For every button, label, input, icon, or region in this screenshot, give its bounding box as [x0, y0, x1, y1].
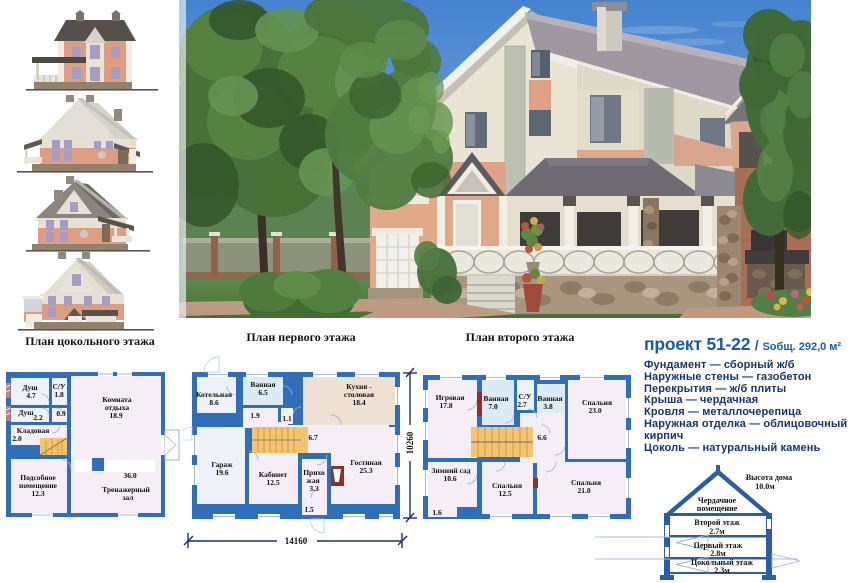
svg-text:1.9: 1.9 [250, 411, 260, 420]
svg-text:36.0: 36.0 [123, 471, 136, 480]
svg-text:7.0: 7.0 [488, 402, 498, 411]
svg-text:2.7м: 2.7м [709, 527, 725, 536]
svg-text:4.7: 4.7 [26, 391, 36, 400]
svg-text:2.7: 2.7 [517, 400, 527, 409]
svg-text:12.5: 12.5 [498, 489, 511, 498]
svg-text:19.6: 19.6 [215, 468, 228, 477]
svg-text:помещение: помещение [697, 504, 738, 513]
svg-text:2.0: 2.0 [12, 434, 22, 443]
svg-text:10.6: 10.6 [443, 474, 456, 483]
svg-text:25.3: 25.3 [359, 466, 372, 475]
svg-text:10.0м: 10.0м [755, 482, 775, 491]
svg-text:23.0: 23.0 [588, 406, 601, 415]
svg-text:8.6: 8.6 [209, 398, 219, 407]
svg-text:2.8м: 2.8м [710, 549, 726, 558]
svg-text:2.2: 2.2 [33, 413, 43, 422]
svg-text:1.5: 1.5 [304, 505, 314, 514]
svg-text:12.5: 12.5 [266, 478, 279, 487]
svg-text:2.3м: 2.3м [714, 566, 730, 575]
svg-text:6.7: 6.7 [308, 433, 318, 442]
svg-text:Второй этаж: Второй этаж [694, 518, 740, 527]
svg-text:Высота дома: Высота дома [746, 473, 792, 482]
svg-text:1.1: 1.1 [282, 414, 292, 423]
svg-text:17.8: 17.8 [439, 401, 452, 410]
svg-text:Душ: Душ [18, 408, 34, 417]
svg-text:1.8: 1.8 [54, 390, 64, 399]
svg-text:3.8: 3.8 [543, 402, 553, 411]
svg-text:1.6: 1.6 [432, 508, 442, 517]
svg-text:10260: 10260 [405, 431, 415, 454]
svg-text:зал: зал [122, 493, 134, 502]
svg-text:18.4: 18.4 [352, 398, 365, 407]
svg-text:6.6: 6.6 [537, 433, 547, 442]
svg-text:3.3: 3.3 [309, 484, 319, 493]
svg-text:6.5: 6.5 [258, 388, 268, 397]
svg-text:12.3: 12.3 [31, 489, 44, 498]
svg-text:14160: 14160 [285, 536, 308, 546]
svg-text:0.9: 0.9 [56, 409, 66, 418]
svg-text:21.0: 21.0 [577, 486, 590, 495]
svg-text:18.9: 18.9 [109, 411, 122, 420]
